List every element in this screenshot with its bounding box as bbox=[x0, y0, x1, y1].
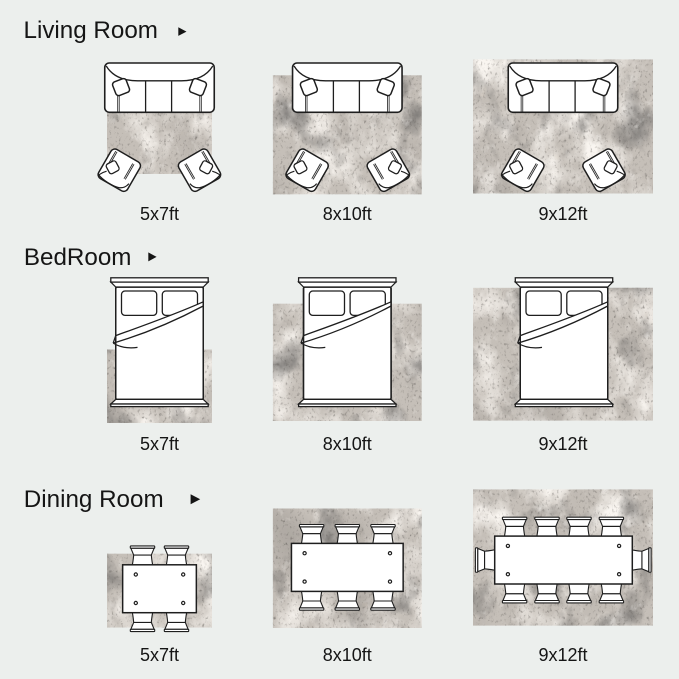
svg-text:9x12ft: 9x12ft bbox=[538, 645, 587, 665]
svg-text:5x7ft: 5x7ft bbox=[140, 204, 179, 224]
svg-text:8x10ft: 8x10ft bbox=[323, 645, 372, 665]
svg-text:8x10ft: 8x10ft bbox=[323, 204, 372, 224]
svg-text:Dining Room: Dining Room bbox=[24, 486, 164, 513]
svg-text:BedRoom: BedRoom bbox=[24, 244, 132, 271]
svg-text:9x12ft: 9x12ft bbox=[538, 434, 587, 454]
svg-text:8x10ft: 8x10ft bbox=[323, 434, 372, 454]
svg-text:9x12ft: 9x12ft bbox=[538, 204, 587, 224]
svg-text:5x7ft: 5x7ft bbox=[140, 434, 179, 454]
svg-text:5x7ft: 5x7ft bbox=[140, 645, 179, 665]
svg-text:Living Room: Living Room bbox=[24, 17, 158, 44]
